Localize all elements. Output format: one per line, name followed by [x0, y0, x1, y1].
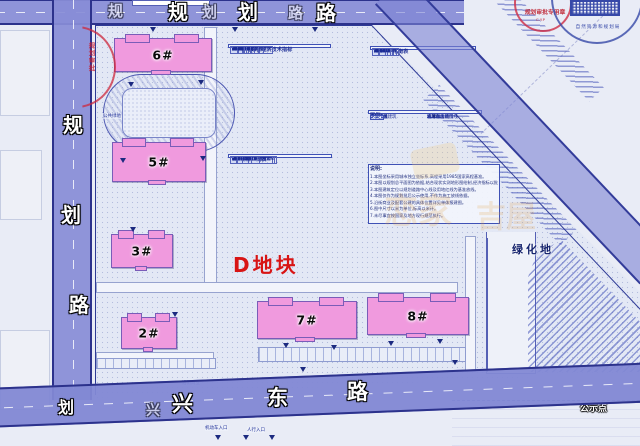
qr-code-icon — [570, 0, 620, 16]
site-plan-blueprint: 6#5#3#2#7#8# D地块 绿化地 公示点 居住用地综合经济技术指标项目数… — [0, 0, 640, 446]
left-road-name: 路 — [69, 295, 89, 315]
building-label: 3# — [131, 244, 152, 259]
junction-road-char: 划 — [58, 400, 74, 416]
adjacent-parcel — [0, 150, 42, 220]
entrance-marker-icon — [120, 158, 126, 163]
legend-item: ▽人行出入口 — [427, 112, 449, 122]
watermark-text: 吉屋 — [476, 192, 536, 236]
entrance-marker-icon — [452, 360, 458, 365]
plot-boundary — [487, 238, 488, 372]
hatch-swatch-icon — [370, 115, 384, 120]
table-cell: 3.2人/户 — [230, 46, 251, 54]
entrance-marker-icon — [312, 27, 318, 32]
entrance-marker-icon — [215, 435, 221, 440]
entrance-marker-icon — [232, 27, 238, 32]
top-road-name: 规 — [168, 2, 188, 22]
adjacent-parcel — [0, 30, 50, 116]
top-road-name-faint: 路 — [288, 6, 303, 21]
plot-label: D地块 — [233, 249, 299, 278]
building-6: 6# — [114, 38, 212, 72]
entrance-marker-icon — [172, 312, 178, 317]
entrance-marker-icon — [130, 227, 136, 232]
plan-annotation: 人行入口 — [247, 427, 265, 433]
parking-strip — [96, 358, 216, 369]
entrance-marker-icon — [283, 343, 289, 348]
central-green — [122, 88, 216, 138]
building-tab — [135, 266, 147, 271]
plan-annotation: 机动车入口 — [205, 425, 228, 431]
entrance-marker-icon — [243, 435, 249, 440]
facilities-table: 公共配套一览表序号项目单位地上建筑面积备注1社区办公及服务用房㎡465.12与物… — [228, 154, 332, 158]
building-tab — [406, 333, 426, 338]
building-label: 2# — [138, 326, 159, 341]
green-area-label: 绿化地 — [512, 241, 554, 257]
building-7: 7# — [257, 301, 357, 339]
entrance-marker-icon — [331, 345, 337, 350]
bottom-road-name: 东 — [267, 388, 288, 409]
top-road-name: 划 — [238, 2, 258, 22]
pedestrian-entrance-icon: ▽ — [427, 114, 441, 120]
entrance-marker-icon — [300, 367, 306, 372]
left-stamp-text: 规划审批 — [86, 42, 96, 90]
top-road-name-faint: 划 — [202, 5, 217, 20]
legend: 图例 规划建筑周边现状建筑公共绿地用地红线地下车库范围线道路中心线▼机动车出入口… — [368, 110, 482, 114]
bottom-road-name-faint: 兴 — [146, 404, 160, 418]
building-label: 6# — [152, 48, 173, 63]
entrance-marker-icon — [388, 341, 394, 346]
entrance-marker-icon — [198, 80, 204, 85]
entrance-marker-icon — [437, 339, 443, 344]
approval-stamp-subtext: C.Y.P — [536, 17, 545, 22]
left-road-name: 划 — [61, 205, 81, 225]
blue-stamp-text: 自然资源和规划局 — [556, 24, 640, 30]
top-road-name: 路 — [316, 3, 336, 23]
building-2: 2# — [121, 317, 177, 349]
entrance-marker-icon — [150, 27, 156, 32]
plot-boundary — [95, 25, 372, 26]
building-label: 7# — [296, 313, 317, 328]
entrance-marker-icon — [200, 156, 206, 161]
building-tab — [148, 180, 166, 185]
building-tab — [143, 347, 154, 352]
building-5: 5# — [112, 142, 206, 182]
entrance-marker-icon — [269, 435, 275, 440]
building-tab — [295, 337, 315, 342]
building-tab — [151, 70, 170, 75]
internal-drive — [96, 282, 458, 293]
watermark-text: 恋家 — [384, 184, 452, 233]
entrance-marker-icon — [128, 82, 134, 87]
building-3: 3# — [111, 234, 173, 268]
parking-strip — [258, 347, 466, 362]
plan-annotation: 公共绿地 — [103, 113, 121, 119]
bottom-road-name: 路 — [347, 382, 368, 403]
top-road-name-faint: 规 — [108, 4, 123, 19]
main-indicator-table: 居住用地综合经济技术指标项目数值单位备注规划用地9.8043ha总建筑面积449… — [228, 44, 331, 48]
table-cell: 100.00 — [372, 48, 391, 56]
bottom-road-name: 兴 — [172, 394, 193, 415]
building-8: 8# — [367, 297, 469, 335]
table-cell — [230, 156, 234, 158]
building-label: 8# — [407, 309, 428, 324]
left-road-name: 规 — [63, 115, 83, 135]
building-label: 5# — [148, 155, 169, 170]
